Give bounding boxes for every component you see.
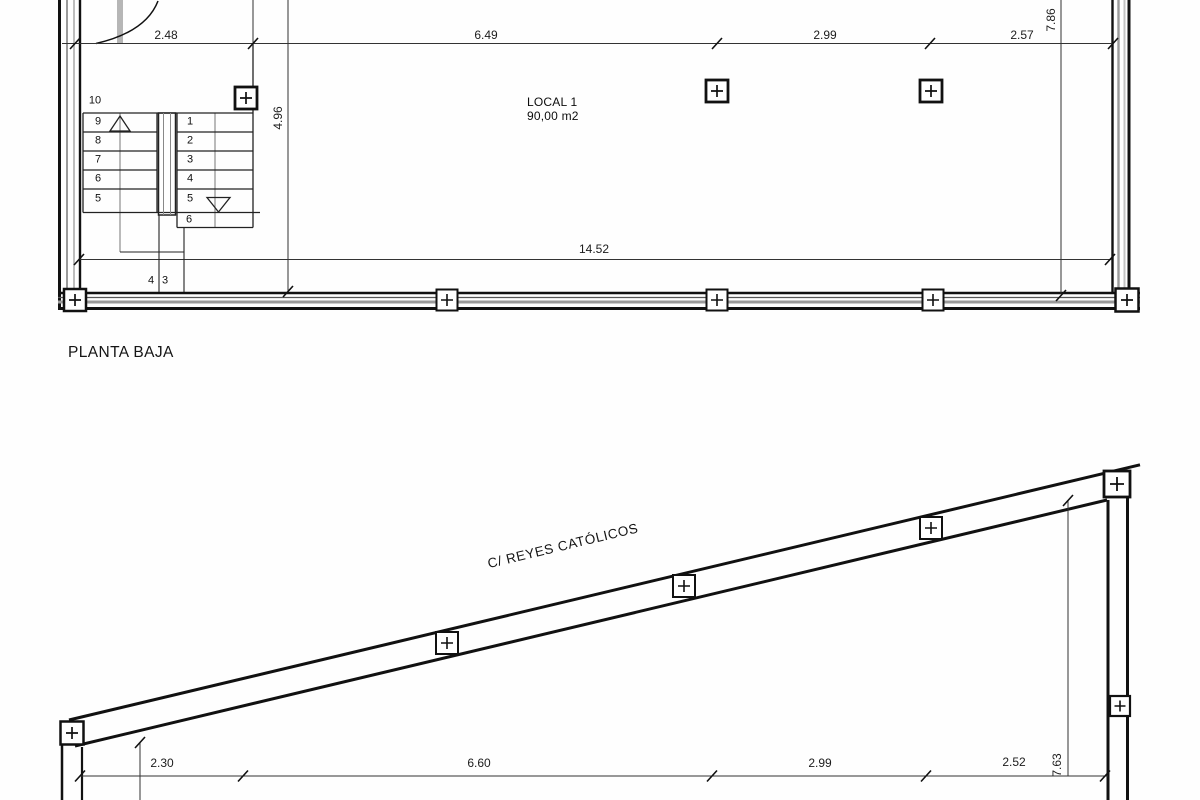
plan-linework [0, 0, 1200, 800]
dim-label: 2.52 [1002, 756, 1025, 770]
stair-step-number: 7 [95, 154, 101, 167]
column-marker-icon [437, 290, 458, 311]
column-marker-icon [235, 87, 257, 109]
column-marker-icon [920, 517, 942, 539]
stair-step-number: 4 [148, 275, 154, 288]
dim-label-vertical: 4.96 [272, 106, 286, 129]
dim-label: 2.99 [808, 757, 831, 771]
column-marker-icon [1116, 289, 1139, 312]
column-marker-icon [61, 722, 84, 745]
dim-label: 6.49 [474, 29, 497, 43]
stair-step-number: 5 [95, 193, 101, 206]
column-marker-icon [706, 80, 728, 102]
column-marker-icon [923, 290, 944, 311]
stair-step-number: 3 [162, 275, 168, 288]
column-marker-icon [436, 632, 458, 654]
column-marker-icon [707, 290, 728, 311]
column-marker-icon [64, 289, 86, 311]
staircase [83, 44, 260, 292]
column-markers-lower [61, 471, 1131, 745]
column-markers-upper [64, 80, 1139, 312]
stair-step-number: 2 [187, 135, 193, 148]
column-marker-icon [1104, 471, 1130, 497]
dim-label: 2.57 [1010, 29, 1033, 43]
stair-count-label: 10 [89, 95, 101, 108]
stair-step-number: 4 [187, 173, 193, 186]
dim-label-vertical: 7.86 [1045, 8, 1059, 31]
dim-label: 2.99 [813, 29, 836, 43]
dim-label: 6.60 [467, 757, 490, 771]
stair-step-number: 6 [186, 214, 192, 227]
stair-down-arrow-icon [207, 198, 230, 213]
dim-label: 2.30 [150, 757, 173, 771]
dim-label-vertical: 7.63 [1051, 753, 1065, 776]
stair-step-number: 6 [95, 173, 101, 186]
stair-step-number: 5 [187, 193, 193, 206]
room-area-label: 90,00 m2 [527, 110, 579, 124]
upper-plan-walls [58, 0, 1140, 309]
dim-label: 2.48 [154, 29, 177, 43]
stair-step-number: 9 [95, 116, 101, 129]
dim-label: 14.52 [579, 243, 609, 257]
lower-plan-walls [62, 465, 1140, 800]
stair-step-number: 8 [95, 135, 101, 148]
floor-plan-sheet: 2.48 6.49 2.99 2.57 4.96 7.86 14.52 LOCA… [0, 0, 1200, 800]
column-marker-icon [1110, 696, 1130, 716]
stair-step-number: 1 [187, 116, 193, 129]
room-name-label: LOCAL 1 [527, 96, 577, 110]
plan-title: PLANTA BAJA [68, 344, 174, 362]
column-marker-icon [920, 80, 942, 102]
stair-step-number: 3 [187, 154, 193, 167]
door-swing [96, 0, 158, 44]
column-marker-icon [673, 575, 695, 597]
